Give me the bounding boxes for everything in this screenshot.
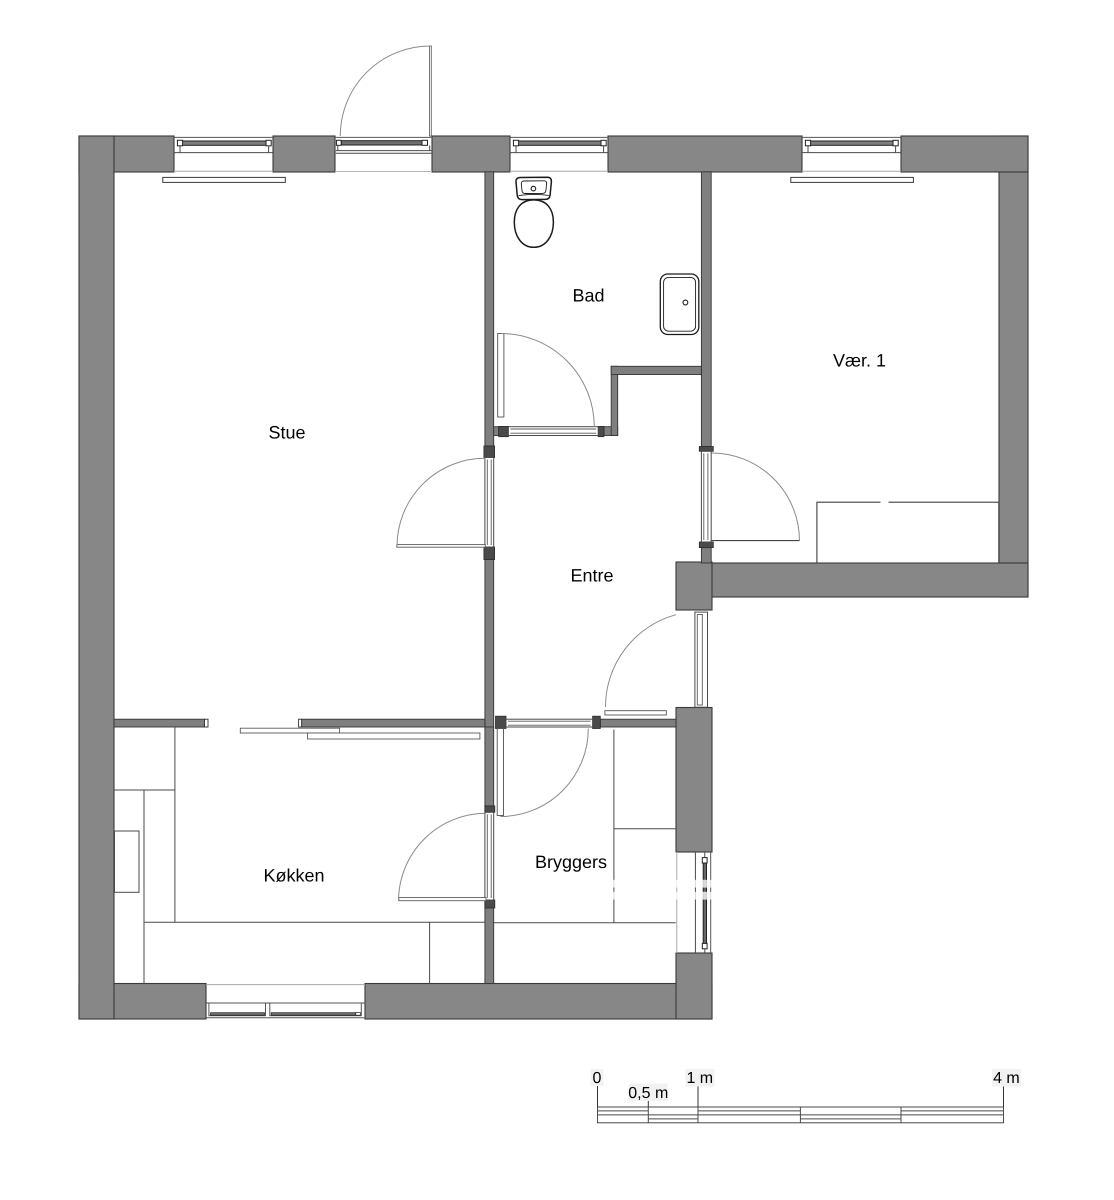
svg-text:Stue: Stue bbox=[268, 423, 305, 443]
svg-text:0: 0 bbox=[593, 1070, 602, 1087]
svg-text:0,5 m: 0,5 m bbox=[628, 1085, 668, 1102]
svg-text:Entre: Entre bbox=[570, 566, 613, 586]
svg-text:1 m: 1 m bbox=[686, 1070, 713, 1087]
svg-text:Bryggers: Bryggers bbox=[535, 852, 607, 872]
svg-text:Vær. 1: Vær. 1 bbox=[833, 351, 886, 371]
svg-text:Køkken: Køkken bbox=[263, 866, 324, 886]
svg-text:4 m: 4 m bbox=[993, 1070, 1020, 1087]
svg-text:Bad: Bad bbox=[572, 286, 604, 306]
